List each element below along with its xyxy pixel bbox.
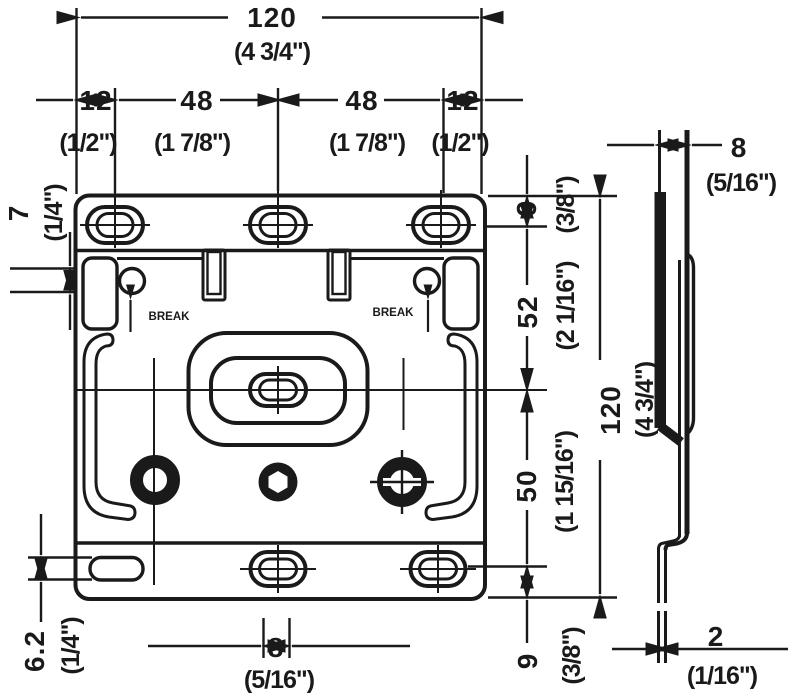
- dim-slot-w-mm: 8: [268, 632, 285, 663]
- dim-slot-w-in: (5/16"): [244, 666, 315, 694]
- right-tab-inner: [333, 252, 346, 294]
- upper-panel-details: BREAK BREAK: [83, 250, 478, 332]
- right-tab: [328, 250, 350, 300]
- dim-bl-slot-h-in: (1/4"): [57, 617, 85, 675]
- dim-seg4-mm: 12: [446, 85, 479, 116]
- dim-total-width-mm: 120: [247, 2, 297, 33]
- technical-drawing-page: BREAK BREAK: [0, 0, 793, 700]
- dim-upper-span-in: (2 1/16"): [552, 261, 580, 351]
- dim-seg2-mm: 48: [180, 85, 213, 116]
- dim-upper-span-mm: 52: [512, 295, 543, 328]
- dim-seg1-in: (1/2"): [59, 129, 117, 157]
- dim-bl-slot-h-mm: 6.2: [19, 630, 50, 672]
- dim-side-thickness-mm: 2: [708, 621, 725, 652]
- right-wing-cutout: [426, 334, 477, 520]
- left-tab-inner: [208, 252, 221, 294]
- dim-side-depth-in: (5/16"): [706, 169, 777, 197]
- dim-seg3-in: (1 7/8"): [329, 129, 406, 157]
- dim-total-height-mm: 120: [595, 385, 626, 435]
- dim-side-depth-mm: 8: [731, 132, 748, 163]
- dim-bottom-slot-in: (3/8"): [558, 627, 586, 685]
- front-view-plate: BREAK BREAK: [76, 190, 548, 599]
- dim-total-height-in: (4 3/4"): [631, 361, 659, 438]
- knockout-label-right: BREAK: [373, 307, 415, 319]
- left-knockout-hole: [120, 269, 145, 294]
- dim-bottom-slot-mm: 9: [512, 653, 543, 670]
- dim-lower-span-mm: 50: [511, 469, 542, 502]
- plate-outline: [76, 196, 486, 600]
- bottom-slots: [90, 545, 476, 593]
- dim-seg3-mm: 48: [345, 85, 378, 116]
- dim-seg4-in: (1/2"): [431, 129, 489, 157]
- dim-seg1-mm: 12: [79, 85, 112, 116]
- dim-side-thickness-in: (1/16"): [687, 662, 758, 690]
- mounting-bracket-dimension-drawing: BREAK BREAK: [0, 0, 793, 700]
- knockout-label-left: BREAK: [149, 311, 191, 323]
- dim-lower-span-in: (1 15/16"): [551, 430, 579, 533]
- side-view-profile: [655, 130, 694, 663]
- dim-total-width-in: (4 3/4"): [234, 38, 311, 66]
- right-knockout-hole: [415, 269, 440, 294]
- dim-hole-dia-mm: 7: [3, 205, 34, 222]
- dim-seg2-in: (1 7/8"): [154, 129, 231, 157]
- dim-top-slot-in: (3/8"): [552, 176, 580, 234]
- dim-hole-dia-in: (1/4"): [40, 184, 68, 242]
- left-wing-cutout: [84, 334, 135, 520]
- top-slots: [80, 190, 476, 248]
- dimension-arrows: [36, 18, 788, 650]
- dim-top-slot-mm: 9: [511, 200, 542, 217]
- bottom-left-slot: [90, 558, 143, 581]
